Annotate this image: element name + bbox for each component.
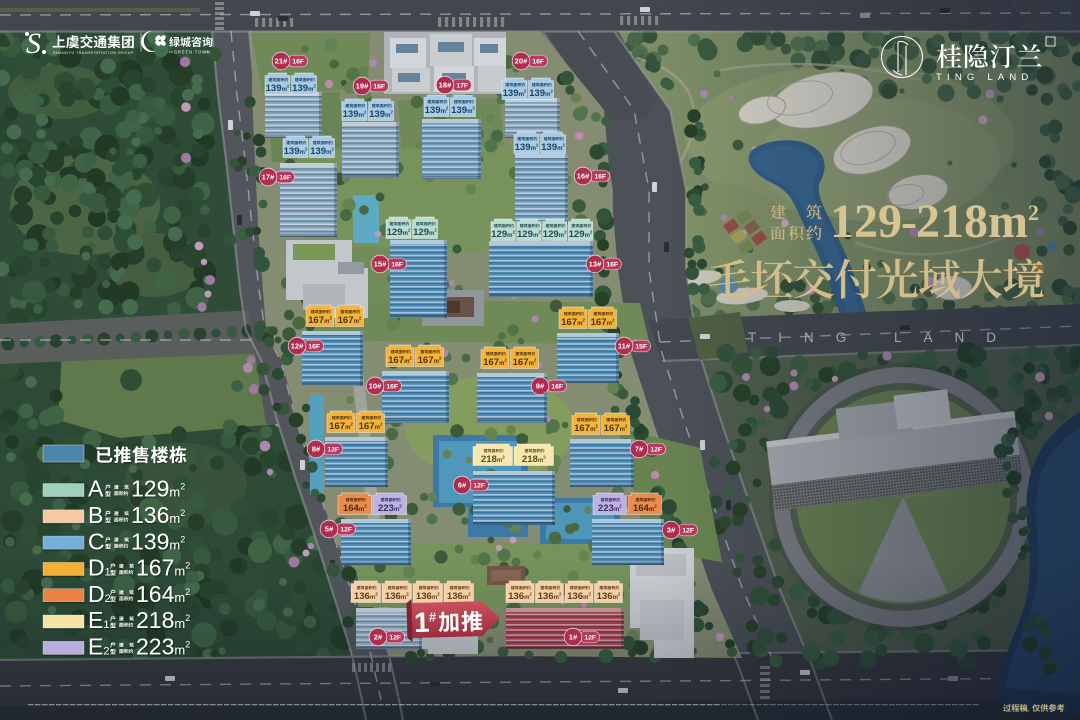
svg-text:16F: 16F — [386, 383, 398, 390]
svg-text:167m2: 167m2 — [418, 355, 442, 366]
svg-text:15#: 15# — [374, 260, 387, 269]
svg-text:164m2: 164m2 — [343, 503, 367, 514]
svg-text:223m2: 223m2 — [598, 503, 622, 514]
svg-text:136m2: 136m2 — [416, 591, 440, 602]
svg-text:TING LAND: TING LAND — [936, 72, 1033, 83]
svg-text:136m2: 136m2 — [567, 591, 591, 602]
svg-text:167m2: 167m2 — [591, 317, 615, 328]
svg-text:129m2: 129m2 — [569, 229, 593, 240]
svg-text:139m2: 139m2 — [515, 142, 539, 153]
svg-text:16F: 16F — [551, 383, 563, 390]
svg-text:SHANGYU TRANSPORTATION GROUP: SHANGYU TRANSPORTATION GROUP — [53, 51, 134, 55]
svg-text:10#: 10# — [369, 382, 382, 391]
svg-text:139m2: 139m2 — [310, 146, 334, 157]
svg-text:129m2: 129m2 — [413, 227, 437, 238]
svg-text:167m2: 167m2 — [359, 421, 383, 432]
svg-text:5#: 5# — [325, 525, 334, 534]
svg-text:164m2: 164m2 — [633, 503, 657, 514]
svg-text:16F: 16F — [279, 174, 291, 181]
svg-text:13#: 13# — [589, 260, 602, 269]
svg-text:20#: 20# — [515, 57, 528, 66]
svg-text:#: # — [429, 609, 437, 624]
svg-text:16F: 16F — [594, 173, 606, 180]
svg-text:2#: 2# — [374, 633, 383, 642]
svg-text:167m2: 167m2 — [483, 357, 507, 368]
svg-text:19#: 19# — [356, 82, 369, 91]
svg-text:136m2: 136m2 — [597, 591, 621, 602]
svg-text:16F: 16F — [373, 83, 385, 90]
svg-text:167m2: 167m2 — [604, 423, 628, 434]
svg-text:136m2: 136m2 — [508, 591, 532, 602]
svg-text:16F: 16F — [606, 261, 618, 268]
svg-text:139m2: 139m2 — [343, 109, 367, 120]
svg-text:11#: 11# — [618, 342, 631, 351]
svg-text:139m2: 139m2 — [266, 83, 290, 94]
svg-text:12F: 12F — [584, 634, 596, 641]
svg-text:8#: 8# — [312, 445, 321, 454]
svg-text:12F: 12F — [340, 526, 352, 533]
svg-text:12F: 12F — [327, 446, 339, 453]
svg-text:15F: 15F — [635, 343, 647, 350]
svg-text:16#: 16# — [577, 172, 590, 181]
svg-text:167m2: 167m2 — [561, 317, 585, 328]
svg-text:139m2: 139m2 — [425, 105, 449, 116]
svg-text:139m2: 139m2 — [451, 105, 475, 116]
svg-text:223m2: 223m2 — [378, 503, 402, 514]
svg-text:21#: 21# — [275, 57, 288, 66]
svg-text:129m2: 129m2 — [491, 229, 515, 240]
svg-text:17#: 17# — [262, 173, 275, 182]
svg-text:136m2: 136m2 — [354, 591, 378, 602]
svg-text:12F: 12F — [473, 482, 485, 489]
svg-text:129m2: 129m2 — [517, 229, 541, 240]
svg-text:136m2: 136m2 — [447, 591, 471, 602]
svg-text:16F: 16F — [532, 58, 544, 65]
svg-text:167m2: 167m2 — [574, 423, 598, 434]
svg-text:136m2: 136m2 — [385, 591, 409, 602]
svg-text:136m2: 136m2 — [538, 591, 562, 602]
svg-text:218m2: 218m2 — [522, 454, 546, 465]
svg-text:167m2: 167m2 — [513, 357, 537, 368]
svg-text:S: S — [26, 27, 41, 60]
svg-text:139m2: 139m2 — [292, 83, 316, 94]
svg-text:167m2: 167m2 — [308, 315, 332, 326]
svg-text:3#: 3# — [667, 526, 676, 535]
svg-text:12F: 12F — [650, 446, 662, 453]
svg-text:A: A — [88, 476, 104, 502]
svg-text:12F: 12F — [682, 527, 694, 534]
svg-text:139m2: 139m2 — [369, 109, 393, 120]
svg-text:9#: 9# — [536, 382, 545, 391]
svg-text:129m2: 129m2 — [387, 227, 411, 238]
svg-text:218m2: 218m2 — [481, 454, 505, 465]
svg-text:16F: 16F — [308, 343, 320, 350]
svg-text:C: C — [88, 528, 105, 554]
svg-text:139m2: 139m2 — [529, 88, 553, 99]
svg-text:139m2: 139m2 — [503, 88, 527, 99]
svg-text:17F: 17F — [456, 82, 468, 89]
svg-text:1#: 1# — [569, 633, 578, 642]
svg-text:167m2: 167m2 — [338, 315, 362, 326]
svg-text:,: , — [1027, 704, 1029, 713]
svg-text:16F: 16F — [292, 58, 304, 65]
svg-text:167m2: 167m2 — [329, 421, 353, 432]
svg-text:167m2: 167m2 — [388, 355, 412, 366]
svg-text:16F: 16F — [391, 261, 403, 268]
svg-text:TING LAND: TING LAND — [748, 330, 1018, 345]
svg-text:1: 1 — [414, 607, 430, 638]
svg-text:18#: 18# — [439, 81, 452, 90]
svg-text:B: B — [88, 502, 103, 528]
svg-text:139m2: 139m2 — [541, 142, 565, 153]
svg-text:7#: 7# — [635, 445, 644, 454]
svg-text:129m2: 129m2 — [543, 229, 567, 240]
svg-text:12#: 12# — [291, 342, 304, 351]
svg-text:6#: 6# — [458, 481, 467, 490]
svg-text:129-218m2: 129-218m2 — [830, 195, 1039, 248]
svg-text:12F: 12F — [389, 634, 401, 641]
svg-text:139m2: 139m2 — [284, 146, 308, 157]
